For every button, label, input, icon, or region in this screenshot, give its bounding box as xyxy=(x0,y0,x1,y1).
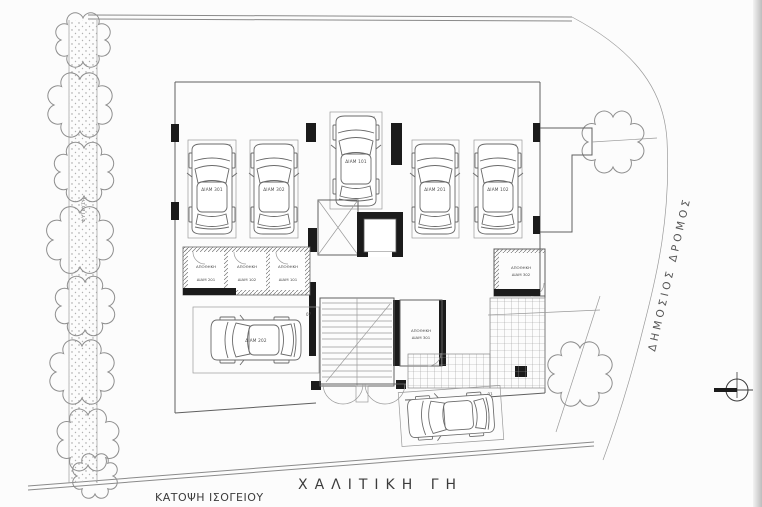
storage-type-label: ΑΠΟΘΗΚΗ xyxy=(237,264,257,269)
road-label: ΔΗΜΟΣΙΟΣ ΔΡΟΜΟΣ xyxy=(646,195,693,352)
car-apartment-label: ΔΙΑΜ 102 xyxy=(487,187,509,192)
entrance-canopy xyxy=(321,384,406,404)
car-apartment-label: ΔΙΑΜ 202 xyxy=(245,338,267,343)
light-shaft xyxy=(318,200,358,255)
floor-plan-sheet: ΦΥΤΕΥΣΗ xyxy=(0,0,762,507)
trees-east xyxy=(548,111,644,406)
car-apartment-label: ΔΙΑΜ 101 xyxy=(345,159,367,164)
car xyxy=(407,389,496,442)
tree-icon xyxy=(582,111,644,173)
storage-apt-label: ΔΙΑΜ 201 xyxy=(197,277,216,282)
parking-stall: 05 ΔΙΑΜ 302 xyxy=(249,140,299,238)
car-apartment-label: ΔΙΑΜ 302 xyxy=(263,187,285,192)
stall-number: 07 xyxy=(306,312,312,317)
tree-icon xyxy=(548,342,612,406)
parking-stall: 01 xyxy=(398,386,504,447)
storage-room-row: ΑΠΟΘΗΚΗ ΔΙΑΜ 201 ΑΠΟΘΗΚΗ ΔΙΑΜ 102 ΑΠΟΘΗΚ… xyxy=(183,247,310,295)
parking-stall: 02 ΔΙΑΜ 102 xyxy=(473,140,523,238)
planting-strip: ΦΥΤΕΥΣΗ xyxy=(69,20,97,483)
parking-stall: 04 ΔΙΑΜ 101 xyxy=(330,112,382,209)
storage-apt-label: ΔΙΑΜ 101 xyxy=(279,277,298,282)
parking-stall: 06 ΔΙΑΜ 301 xyxy=(187,140,237,238)
car-apartment-label: ΔΙΑΜ 301 xyxy=(201,187,223,192)
storage-apt-label: ΔΙΑΜ 102 xyxy=(238,277,257,282)
floor-plan-drawing: ΦΥΤΕΥΣΗ xyxy=(0,0,762,507)
car-apartment-label: ΔΙΑΜ 201 xyxy=(424,187,446,192)
entrance-paving xyxy=(408,298,600,388)
storage-apt-label: ΔΙΑΜ 301 xyxy=(412,335,431,340)
storage-apt-label: ΔΙΑΜ 302 xyxy=(512,272,531,277)
storage-type-label: ΑΠΟΘΗΚΗ xyxy=(411,328,431,333)
scan-edge-shadow xyxy=(753,0,762,507)
parking-stall: 07 ΔΙΑΜ 202 xyxy=(193,307,319,373)
site-label: ΧΑΛΙΤΙΚΗ ΓΗ xyxy=(298,477,463,493)
elevator xyxy=(357,212,403,257)
staircase xyxy=(320,298,394,386)
plan-title: ΚΑΤΟΨΗ ΙΣΟΓΕΙΟΥ xyxy=(155,491,264,504)
storage-type-label: ΑΠΟΘΗΚΗ xyxy=(196,264,216,269)
storage-room: ΑΠΟΘΗΚΗ ΔΙΑΜ 302 xyxy=(494,249,545,296)
storage-type-label: ΑΠΟΘΗΚΗ xyxy=(511,265,531,270)
storage-type-label: ΑΠΟΘΗΚΗ xyxy=(278,264,298,269)
parking-stall: 03 ΔΙΑΜ 201 xyxy=(410,140,460,238)
site-boundary xyxy=(28,15,668,490)
